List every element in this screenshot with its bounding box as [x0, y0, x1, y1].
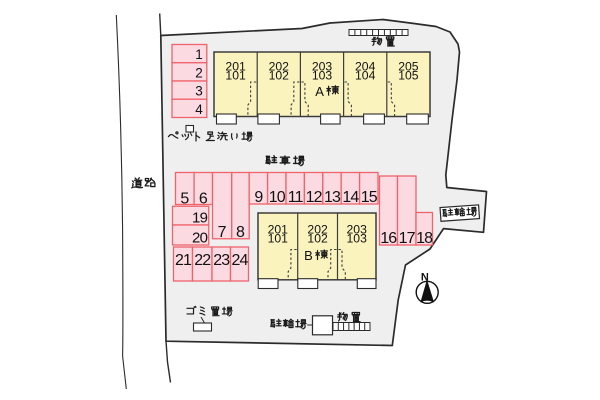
svg-text:7: 7 — [218, 224, 227, 241]
svg-text:22: 22 — [194, 252, 211, 269]
svg-text:104: 104 — [355, 69, 376, 83]
svg-text:20: 20 — [192, 230, 208, 247]
svg-text:1: 1 — [195, 47, 203, 62]
svg-text:B: B — [304, 248, 313, 263]
svg-text:13: 13 — [324, 189, 341, 206]
svg-text:103: 103 — [347, 232, 368, 246]
svg-text:16: 16 — [380, 230, 397, 247]
svg-text:5: 5 — [180, 190, 189, 207]
svg-text:10: 10 — [269, 189, 286, 206]
svg-text:17: 17 — [399, 230, 416, 247]
svg-text:14: 14 — [342, 189, 359, 206]
svg-text:4: 4 — [195, 102, 203, 117]
svg-text:19: 19 — [192, 210, 208, 227]
svg-text:24: 24 — [232, 252, 249, 269]
svg-text:2: 2 — [195, 65, 203, 80]
svg-text:101: 101 — [268, 232, 289, 246]
svg-text:18: 18 — [416, 230, 433, 247]
svg-text:21: 21 — [175, 252, 192, 269]
svg-text:8: 8 — [236, 224, 245, 241]
svg-text:101: 101 — [225, 69, 246, 83]
svg-text:12: 12 — [306, 189, 323, 206]
svg-text:102: 102 — [269, 69, 290, 83]
svg-text:6: 6 — [199, 190, 208, 207]
svg-text:103: 103 — [312, 69, 333, 83]
svg-text:11: 11 — [288, 189, 304, 206]
svg-text:23: 23 — [213, 252, 230, 269]
svg-text:15: 15 — [361, 189, 378, 206]
svg-text:105: 105 — [398, 69, 419, 83]
svg-text:9: 9 — [254, 189, 263, 206]
svg-text:A: A — [315, 84, 324, 99]
svg-text:3: 3 — [195, 84, 203, 99]
svg-text:102: 102 — [307, 232, 328, 246]
